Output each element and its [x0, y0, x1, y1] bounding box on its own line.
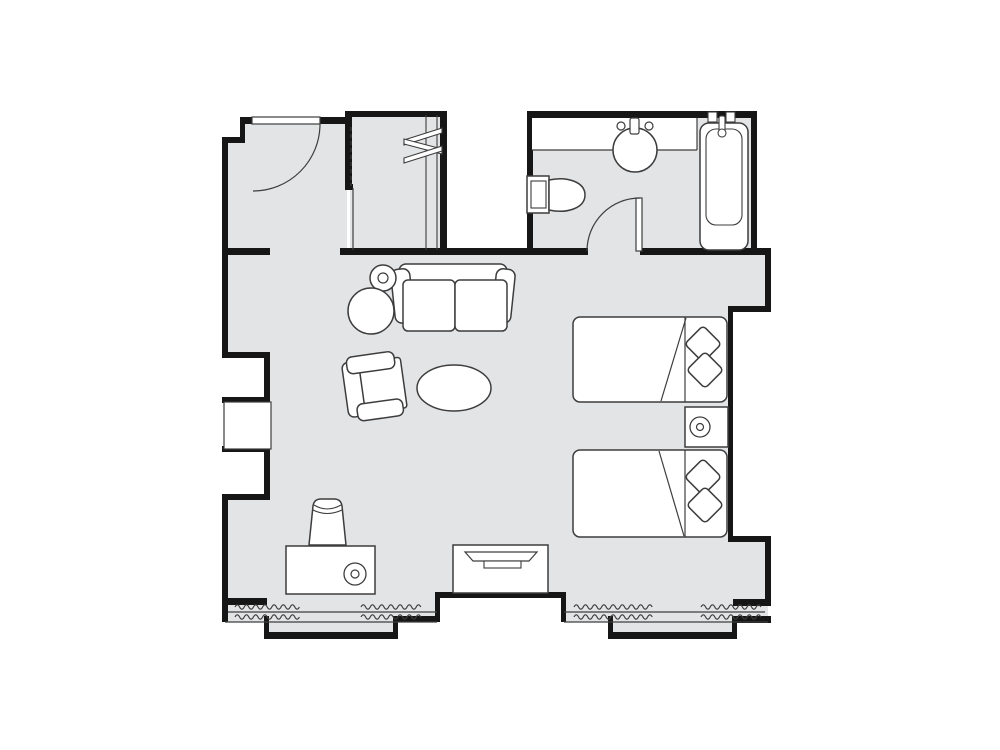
tub-spout-head	[718, 129, 726, 137]
desk-lamp-dot	[351, 570, 359, 578]
bed-alcove-wall-bottom	[728, 536, 771, 542]
right-wall-lower	[765, 536, 771, 606]
toilet-tank-inner	[531, 181, 546, 208]
left-notch1-top	[222, 352, 270, 358]
left-bay-wall-bottom	[264, 632, 398, 639]
tv-stand	[484, 561, 521, 568]
left-notch2-side	[264, 446, 270, 500]
north-wall-main	[340, 248, 588, 255]
sink-tap-left	[617, 122, 625, 130]
bed-alcove-wall-top	[728, 306, 771, 312]
sink-spout	[630, 118, 639, 134]
left-notch2-bottom	[222, 494, 270, 500]
entry-door-leaf	[252, 117, 320, 124]
bathtub-inner	[706, 129, 742, 225]
right-wall-upper	[765, 248, 771, 312]
bathroom-right-wall	[751, 111, 757, 255]
mid-bump-wall-right	[561, 592, 566, 622]
closet-top-wall	[345, 111, 447, 117]
sofa-seat-left	[403, 280, 455, 331]
left-window-sill-wall	[222, 598, 267, 605]
floor-plan-svg	[0, 0, 1000, 750]
tub-tap-right	[726, 112, 735, 122]
sink-tap-right	[645, 122, 653, 130]
closet-door-stub	[345, 184, 353, 190]
tub-tap-left	[708, 112, 717, 122]
left-niche-window	[224, 402, 271, 449]
nightstand-lamp-dot	[697, 424, 704, 431]
sofa-seat-right	[455, 280, 507, 331]
side-table	[348, 288, 394, 334]
floor-lamp-bulb	[378, 273, 388, 283]
entry-top-wall-right	[319, 117, 348, 124]
north-wall-entry-stub	[222, 248, 270, 255]
bathroom-door-leaf	[636, 198, 642, 251]
left-wall-upper	[222, 137, 228, 358]
toilet-bowl	[549, 179, 585, 211]
right-bay-wall-bottom	[608, 632, 737, 639]
tv-screen	[465, 552, 537, 561]
coffee-table	[417, 365, 491, 411]
left-notch1-side	[264, 352, 270, 403]
floor-plan	[0, 0, 1000, 750]
